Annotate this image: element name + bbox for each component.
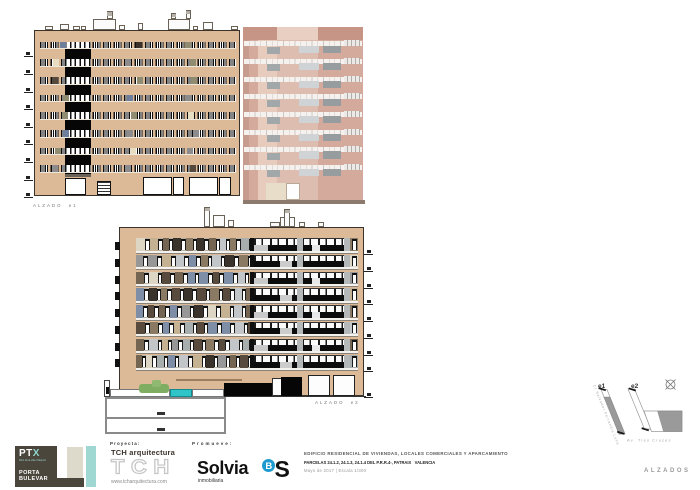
svg-text:Av. Tres Cruces: Av. Tres Cruces bbox=[627, 438, 672, 443]
svg-text:e1: e1 bbox=[598, 383, 606, 390]
svg-text:B: B bbox=[265, 461, 272, 472]
svg-text:S: S bbox=[275, 459, 290, 478]
svg-text:e2: e2 bbox=[631, 383, 639, 390]
